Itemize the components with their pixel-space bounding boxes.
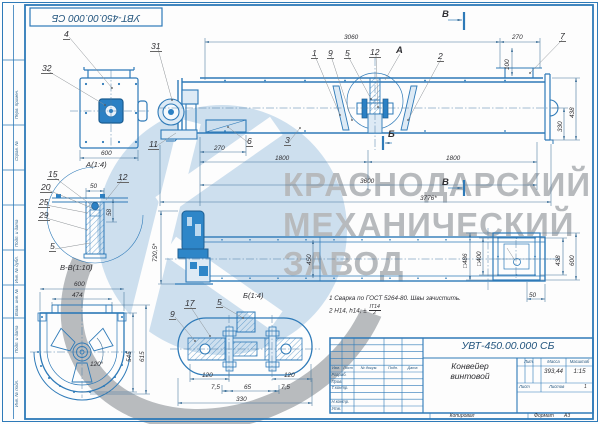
margin-label-3: Инв. № дубл.: [15, 256, 20, 283]
callout-11: 11: [148, 140, 159, 150]
callout-6: 6: [246, 137, 253, 147]
callout-12b: 12: [117, 173, 129, 183]
note-2-prefix: 2 H14, h14, ±: [329, 307, 367, 314]
titleblock-doc-number: УВТ-450.00.000 СБ: [425, 341, 591, 353]
section-v-bottom: В: [442, 178, 449, 188]
dim-474: 474: [72, 292, 83, 299]
titleblock-row-utv: Утв.: [332, 407, 342, 412]
dim-270-bottom: 270: [214, 145, 225, 152]
text-overlay: УВТ-450.00.000 СБ Перв. примен. Справ. №…: [0, 0, 600, 424]
titleblock-part-name-2: винтовой: [423, 372, 517, 381]
dim-438-main: 438: [569, 107, 576, 118]
margin-label-5: Подп. и дата: [15, 326, 20, 354]
note-2-denominator: 2: [369, 311, 381, 316]
titleblock-scale-value: 1:15: [566, 369, 593, 376]
titleblock-part-name-1: Конвейер: [423, 362, 517, 371]
callout-5c: 5: [216, 298, 223, 308]
titleblock-row-ncontr: Н.контр.: [332, 400, 350, 405]
note-2-fraction: IT14 2: [369, 305, 381, 316]
dim-450: 450: [306, 254, 313, 265]
dim-50-flange: 50: [529, 292, 536, 299]
margin-label-2: Подп. и дата: [15, 220, 20, 248]
dim-545: 545: [126, 351, 133, 362]
margin-label-0: Перв. примен.: [15, 90, 20, 119]
titleblock-col-list: Лист: [342, 366, 354, 370]
callout-20: 20: [40, 183, 52, 193]
callout-9: 9: [327, 49, 334, 59]
margin-label-4: Взам. инв. №: [15, 289, 20, 316]
dim-1800-a: 1800: [275, 155, 289, 162]
titleblock-mass-value: 393,44: [541, 369, 566, 376]
dim-3600: 3600: [360, 178, 374, 185]
dim-75-right: 7,5: [281, 384, 290, 391]
titleblock-row-prov: Пров.: [332, 380, 343, 385]
dim-75-left: 7,5: [211, 384, 220, 391]
dim-3776: 3776*: [420, 195, 437, 202]
footer-copied: Копировал: [432, 414, 492, 420]
dim-720: 720,5*: [152, 244, 159, 262]
dim-438-flange: 438: [555, 255, 562, 266]
callout-2: 2: [437, 52, 444, 62]
callout-12: 12: [369, 48, 381, 58]
dim-600-flange: 600: [569, 255, 576, 266]
callout-1: 1: [311, 49, 318, 59]
detail-a-letter: А: [396, 46, 403, 56]
dim-120-left: 120: [202, 372, 213, 379]
callout-17: 17: [184, 299, 196, 309]
titleblock-col-doc: № докум.: [354, 366, 384, 370]
dim-486: □486: [462, 253, 469, 268]
callout-5: 5: [344, 49, 351, 59]
stamp-top-left: УВТ-450.00.000 СБ: [30, 8, 162, 26]
dim-615: 615: [139, 351, 146, 362]
titleblock-lit-label: Лит.: [517, 360, 541, 365]
section-b-mark: Б: [388, 130, 395, 140]
callout-9b: 9: [169, 310, 176, 320]
view-label-a: А(1:4): [86, 161, 107, 169]
callout-3: 3: [284, 136, 291, 146]
dim-600-a: 600: [101, 150, 112, 157]
callout-15: 15: [47, 170, 59, 180]
dim-3060: 3060: [344, 34, 358, 41]
dim-58-bb: 58: [106, 209, 113, 216]
callout-7: 7: [559, 32, 566, 42]
dim-400: □400: [476, 251, 483, 266]
view-label-b: Б(1:4): [243, 292, 264, 300]
dim-100: 100: [504, 59, 511, 70]
margin-label-6: Инв. № подл.: [15, 380, 20, 407]
titleblock-row-tcontr: Т.контр.: [332, 386, 349, 391]
dim-330-b: 330: [236, 396, 247, 403]
titleblock-col-izm: Изм.: [330, 366, 342, 370]
titleblock-sheets-value: 1: [584, 385, 587, 391]
callout-5b: 5: [49, 242, 56, 252]
callout-31: 31: [150, 42, 162, 52]
section-v-top: В: [442, 10, 449, 20]
footer-format-label: Формат: [534, 414, 554, 420]
note-2: 2 H14, h14, ± IT14 2: [329, 305, 381, 316]
titleblock-col-date: Дата: [402, 366, 423, 370]
titleblock-mass-label: Масса: [541, 360, 566, 365]
engineering-drawing-page: КРАСНОДАРСКИЙ МЕХАНИЧЕСКИЙ ЗАВОД: [0, 0, 600, 424]
view-label-bb: В-В(1:10): [60, 264, 93, 272]
dim-120-right: 120: [284, 372, 295, 379]
footer-format-value: А3: [564, 414, 570, 420]
callout-29: 29: [38, 211, 50, 221]
dim-330-main: 330: [557, 121, 564, 132]
callout-32: 32: [41, 64, 53, 74]
titleblock-scale-label: Масштаб: [566, 360, 593, 365]
titleblock-sheet-label: Лист: [519, 385, 530, 390]
titleblock-sheets-label: Листов: [549, 385, 564, 390]
dim-50-bb: 50: [90, 183, 97, 190]
callout-4: 4: [63, 30, 70, 40]
margin-label-1: Справ. №: [15, 141, 20, 161]
callout-25: 25: [38, 198, 50, 208]
dim-1800-b: 1800: [446, 155, 460, 162]
dim-600-c: 600: [74, 281, 85, 288]
titleblock-row-razrab: Разраб.: [332, 373, 347, 378]
titleblock-col-sign: Подп.: [384, 366, 402, 370]
dim-270-top: 270: [512, 34, 523, 41]
dim-65: 65: [244, 384, 251, 391]
dim-120-deg: 120°: [90, 361, 103, 368]
note-1: 1 Сварка по ГОСТ 5264-80. Швы зачистить.: [329, 296, 461, 303]
